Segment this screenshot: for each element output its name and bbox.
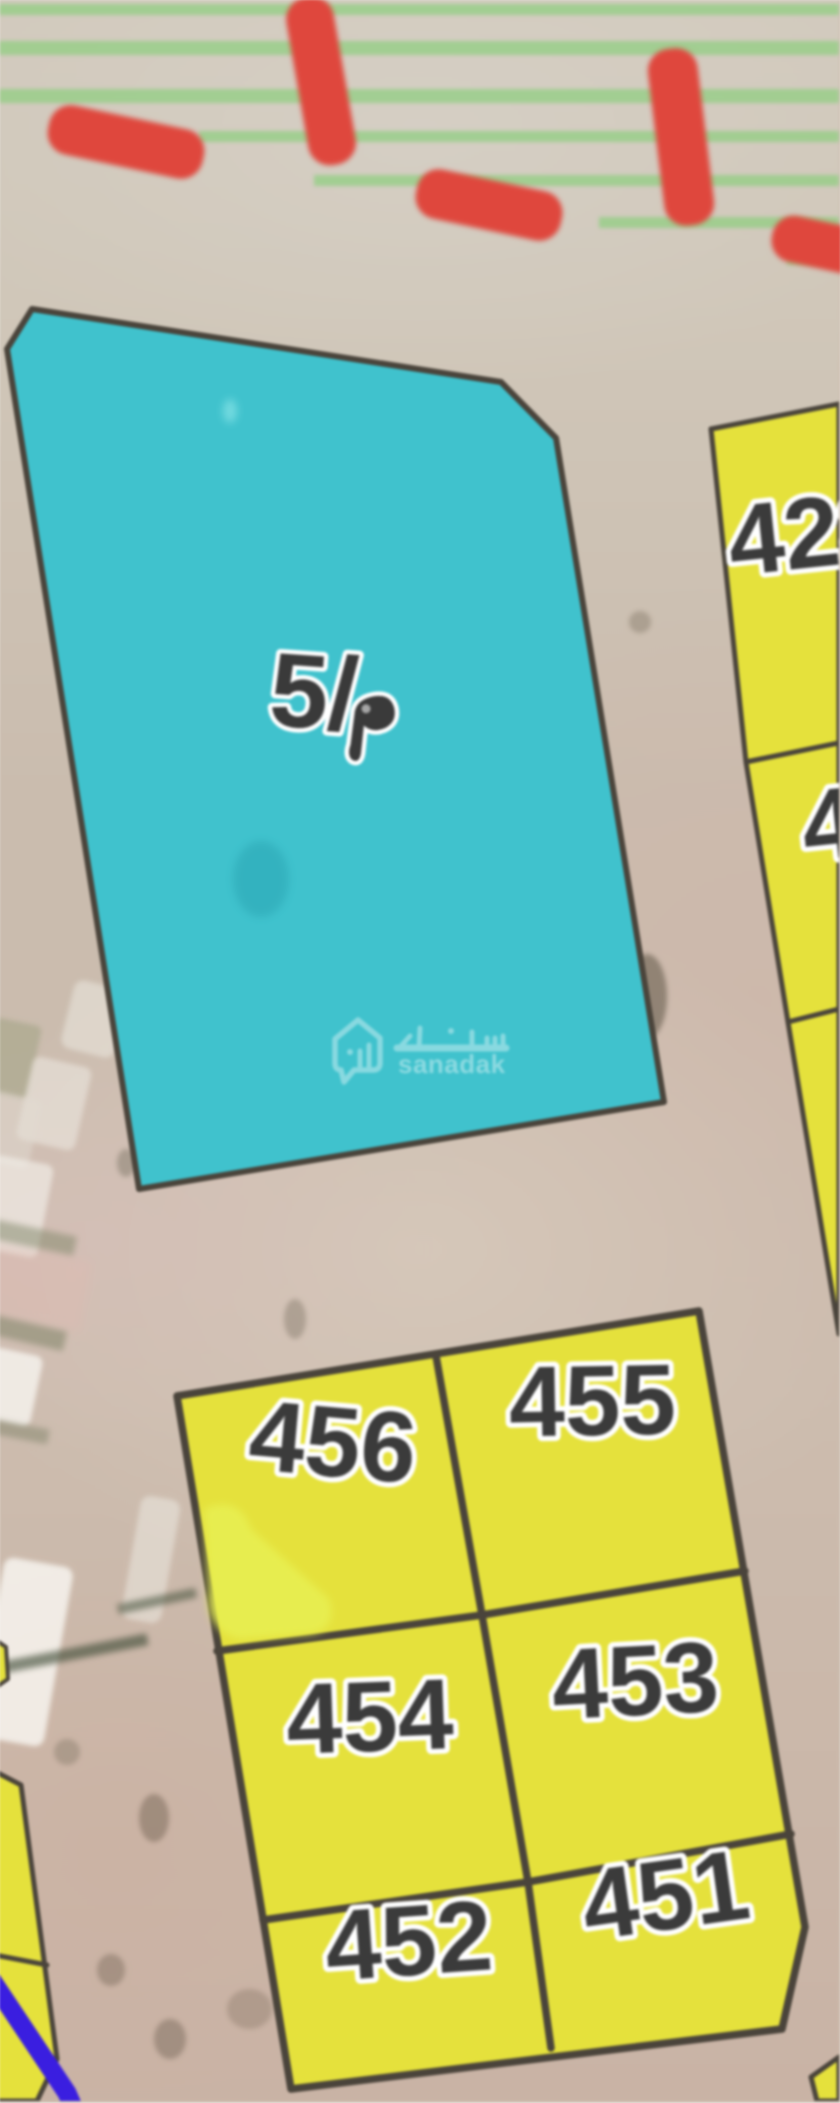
svg-text:453: 453 <box>549 1621 721 1742</box>
svg-text:428: 428 <box>723 469 839 598</box>
svg-text:451: 451 <box>575 1828 756 1962</box>
svg-text:sanadak: sanadak <box>398 1049 506 1079</box>
svg-text:454: 454 <box>284 1658 455 1776</box>
svg-text:455: 455 <box>508 1344 677 1459</box>
svg-text:456: 456 <box>245 1379 421 1505</box>
svg-text:452: 452 <box>321 1879 495 2002</box>
